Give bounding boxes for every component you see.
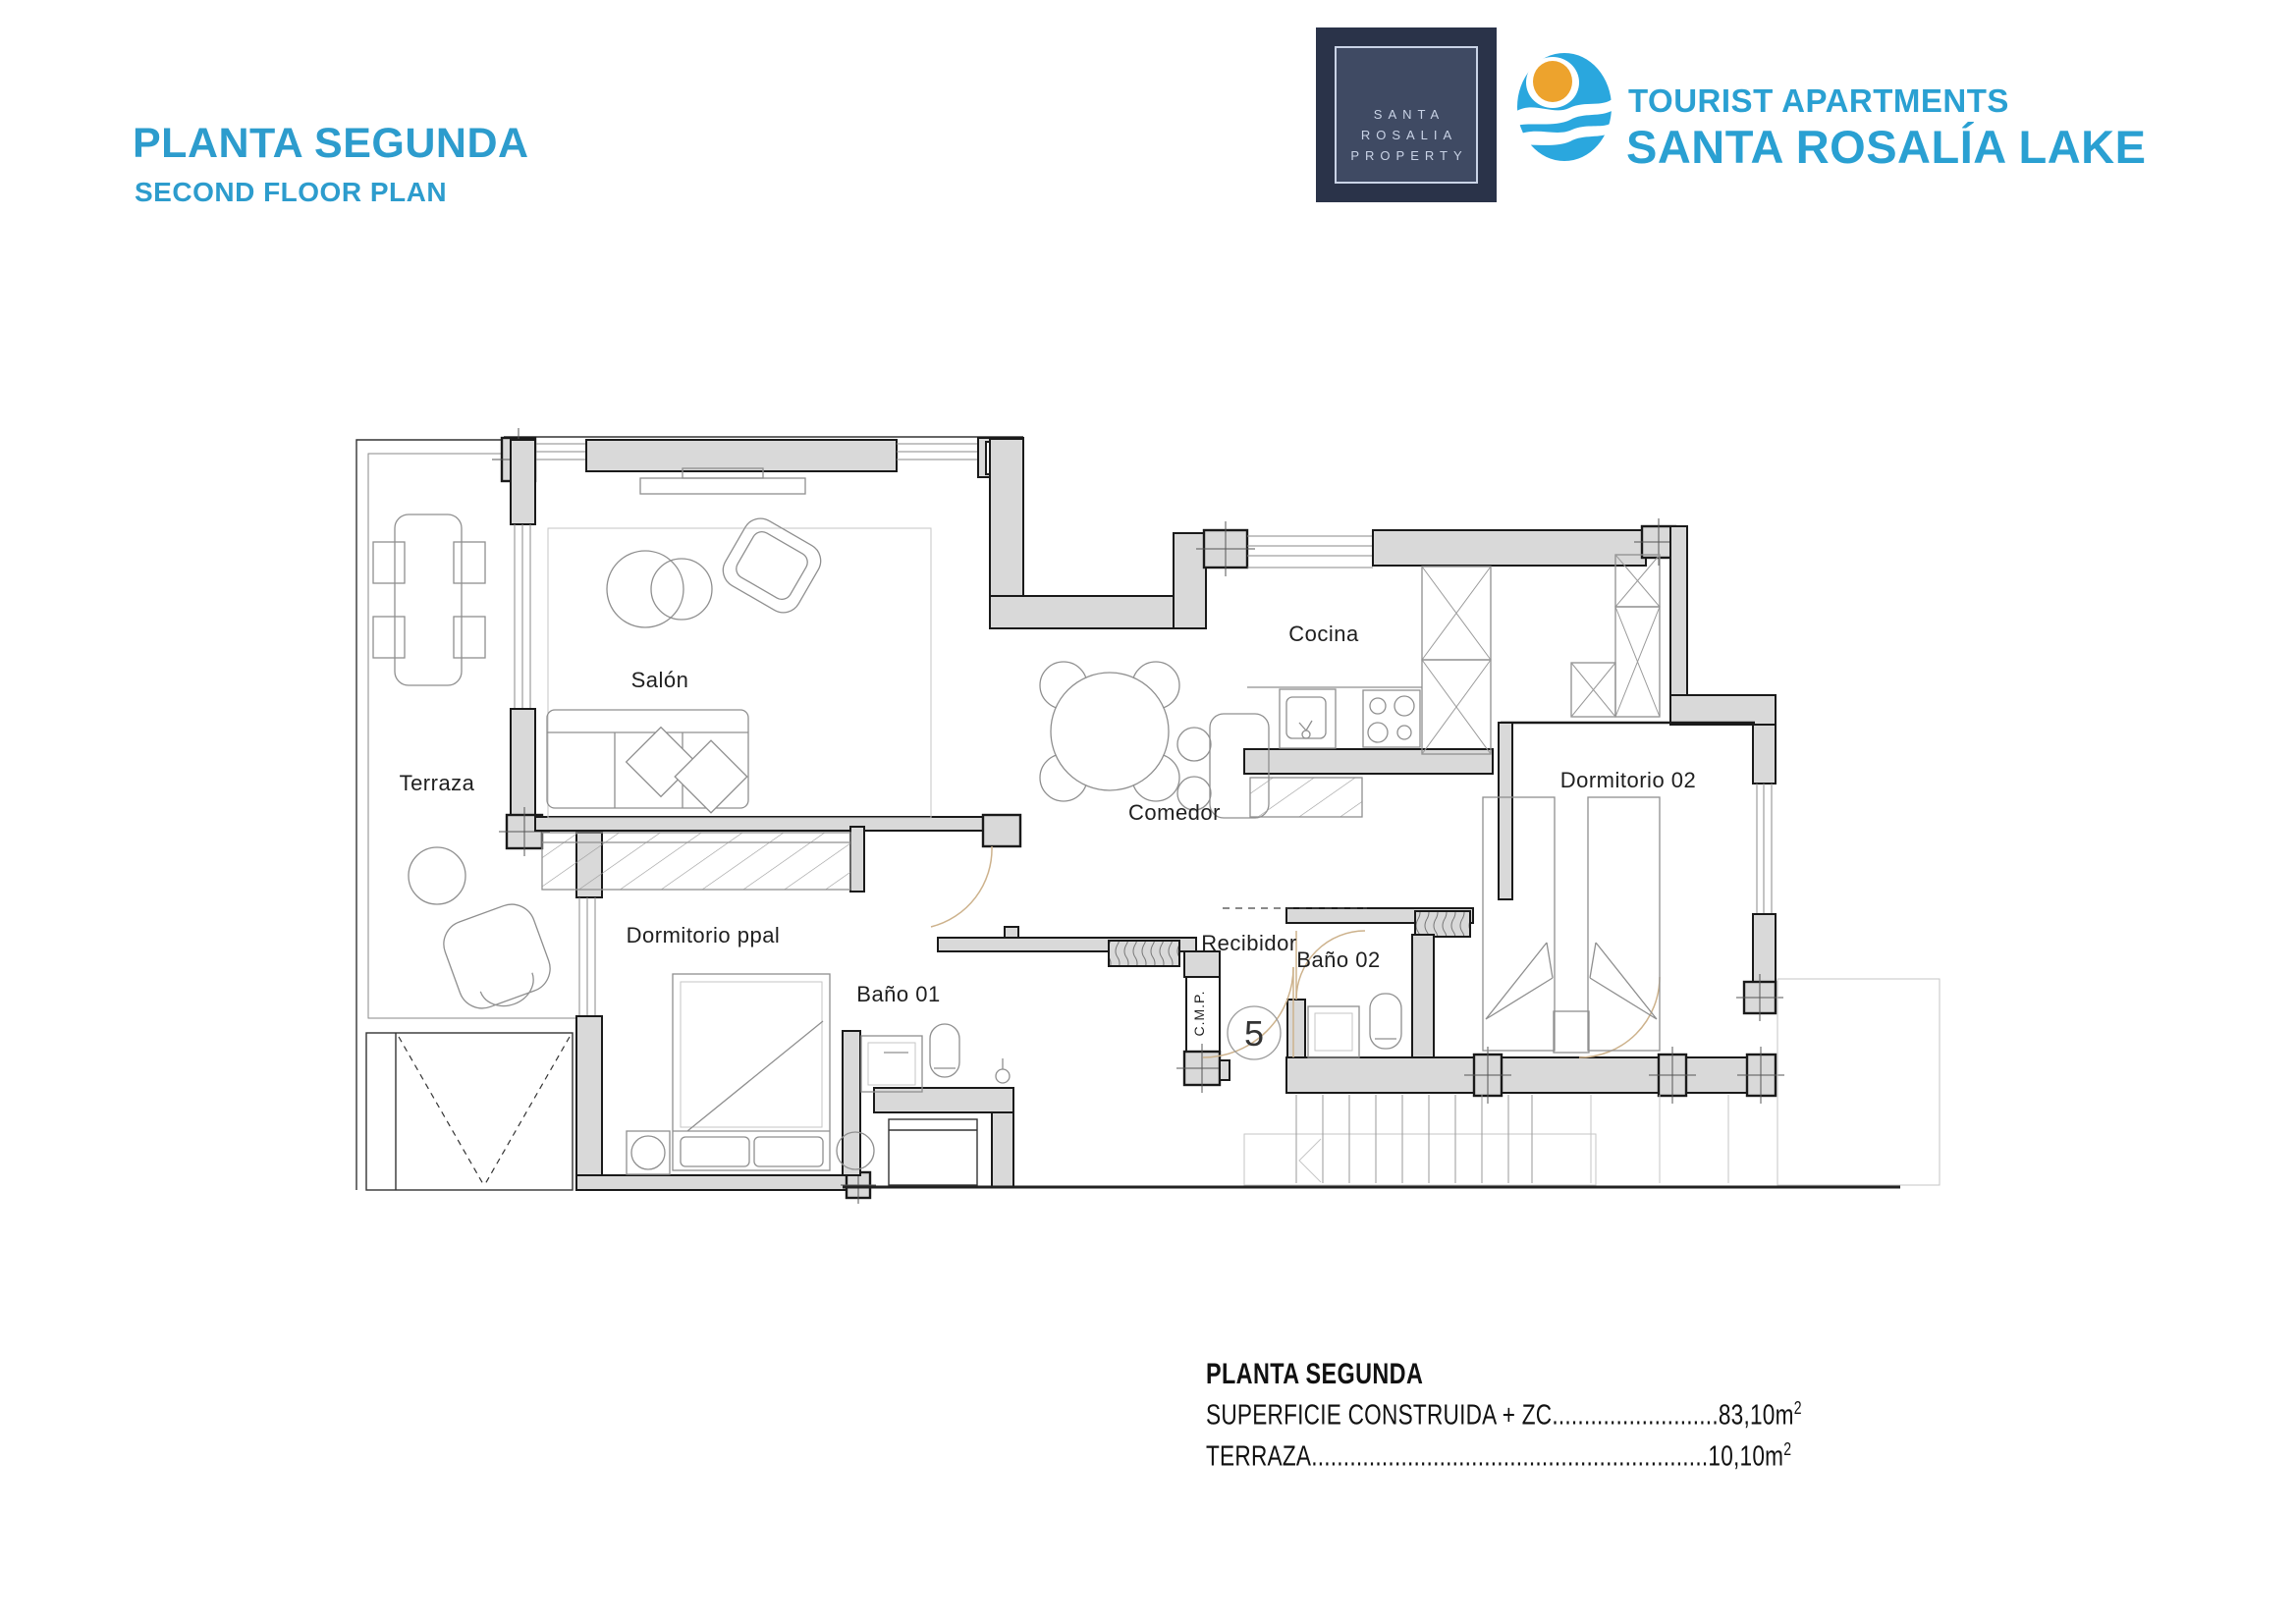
room-label-cocina: Cocina — [1288, 622, 1359, 646]
room-label-bano-01: Baño 01 — [856, 982, 940, 1006]
unit-number: 5 — [1244, 1013, 1264, 1054]
salon-furniture — [547, 468, 931, 818]
room-label-comedor: Comedor — [1128, 800, 1221, 825]
shower — [1308, 1006, 1359, 1057]
room-label-recibidor: Recibidor — [1201, 931, 1296, 955]
adjacent-unit-outline — [1777, 979, 1940, 1185]
tv-bench — [640, 478, 805, 494]
sofa — [547, 710, 748, 813]
floor-plan: Terraza Salón Comedor Cocina Dormitorio … — [0, 0, 2296, 1623]
room-label-dormitorio-02: Dormitorio 02 — [1560, 768, 1697, 792]
washbasin — [996, 1069, 1010, 1083]
kitchen-fixtures — [1177, 567, 1491, 818]
summary-title: PLANTA SEGUNDA — [1206, 1358, 1802, 1391]
single-bed — [1588, 797, 1660, 1051]
terrace-lounge-chair — [437, 897, 559, 1020]
summary-line-built-area: SUPERFICIE CONSTRUIDA + ZC..............… — [1206, 1398, 1802, 1433]
sideboard — [1250, 778, 1362, 817]
terrace-void-box — [366, 1033, 573, 1190]
terrace-chair — [373, 617, 405, 658]
kitchen-sink — [1280, 689, 1336, 748]
summary-line-terrace-area: TERRAZA.................................… — [1206, 1439, 1802, 1474]
pillow — [681, 1137, 749, 1166]
nightstand — [627, 1131, 670, 1174]
single-bed — [1483, 797, 1555, 1051]
terrace-table — [395, 514, 462, 685]
dining-table — [1051, 673, 1169, 790]
pillar — [983, 815, 1020, 846]
toilet — [1370, 994, 1401, 1049]
wardrobe — [542, 833, 850, 890]
toilet — [930, 1024, 959, 1077]
wardrobe — [1571, 555, 1660, 717]
stair-landing — [889, 1119, 977, 1185]
shaft-label: C.M.P. — [1191, 991, 1207, 1037]
bath01-fixtures — [861, 1024, 1010, 1092]
pillow — [754, 1137, 823, 1166]
room-label-dormitorio-ppal: Dormitorio ppal — [627, 923, 781, 947]
terrace-chair — [454, 617, 485, 658]
hall-door-arc — [931, 846, 992, 927]
dining-furniture — [1040, 662, 1179, 801]
lintel-wall — [586, 440, 897, 471]
coffee-table — [607, 551, 683, 627]
shower — [861, 1036, 922, 1092]
area-summary: PLANTA SEGUNDA SUPERFICIE CONSTRUIDA + Z… — [1206, 1358, 1802, 1473]
terrace-chair — [454, 542, 485, 583]
bath02-fixtures — [1308, 994, 1401, 1057]
nightstand — [1554, 1011, 1589, 1053]
terrace-side-table — [409, 847, 465, 904]
kitchen-tall-units — [1422, 567, 1491, 754]
double-bed — [673, 974, 830, 1170]
room-label-terraza: Terraza — [400, 771, 475, 795]
bedroom02-door-arc — [1579, 977, 1660, 1057]
kitchen-hob — [1363, 690, 1420, 747]
room-label-salon: Salón — [631, 668, 689, 692]
stair-treads — [1296, 1095, 1728, 1183]
stool — [1177, 728, 1211, 761]
terrace-chair — [373, 542, 405, 583]
coffee-table — [651, 559, 712, 620]
room-label-bano-02: Baño 02 — [1296, 947, 1380, 972]
terrace-outline — [356, 437, 1023, 1190]
